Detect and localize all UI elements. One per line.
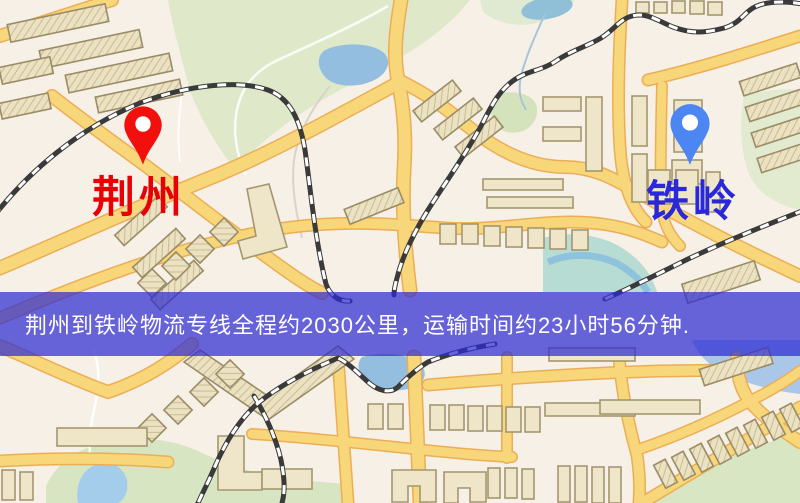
origin-pin-icon[interactable] — [121, 102, 165, 168]
destination-pin-icon[interactable] — [667, 100, 713, 168]
destination-pin-hole — [682, 114, 698, 130]
origin-pin-hole — [135, 116, 150, 131]
destination-pin-body — [670, 104, 709, 165]
destination-city-label: 铁岭 — [646, 181, 740, 224]
route-info-text: 荆州到铁岭物流专线全程约2030公里，运输时间约23小时56分钟. — [0, 308, 690, 340]
origin-pin-body — [124, 106, 161, 164]
map-viewport: 荆州 铁岭 荆州到铁岭物流专线全程约2030公里，运输时间约23小时56分钟. — [0, 0, 800, 503]
route-info-banner: 荆州到铁岭物流专线全程约2030公里，运输时间约23小时56分钟. — [0, 292, 800, 356]
origin-city-label: 荆州 — [92, 177, 186, 220]
map-canvas[interactable] — [0, 0, 800, 503]
